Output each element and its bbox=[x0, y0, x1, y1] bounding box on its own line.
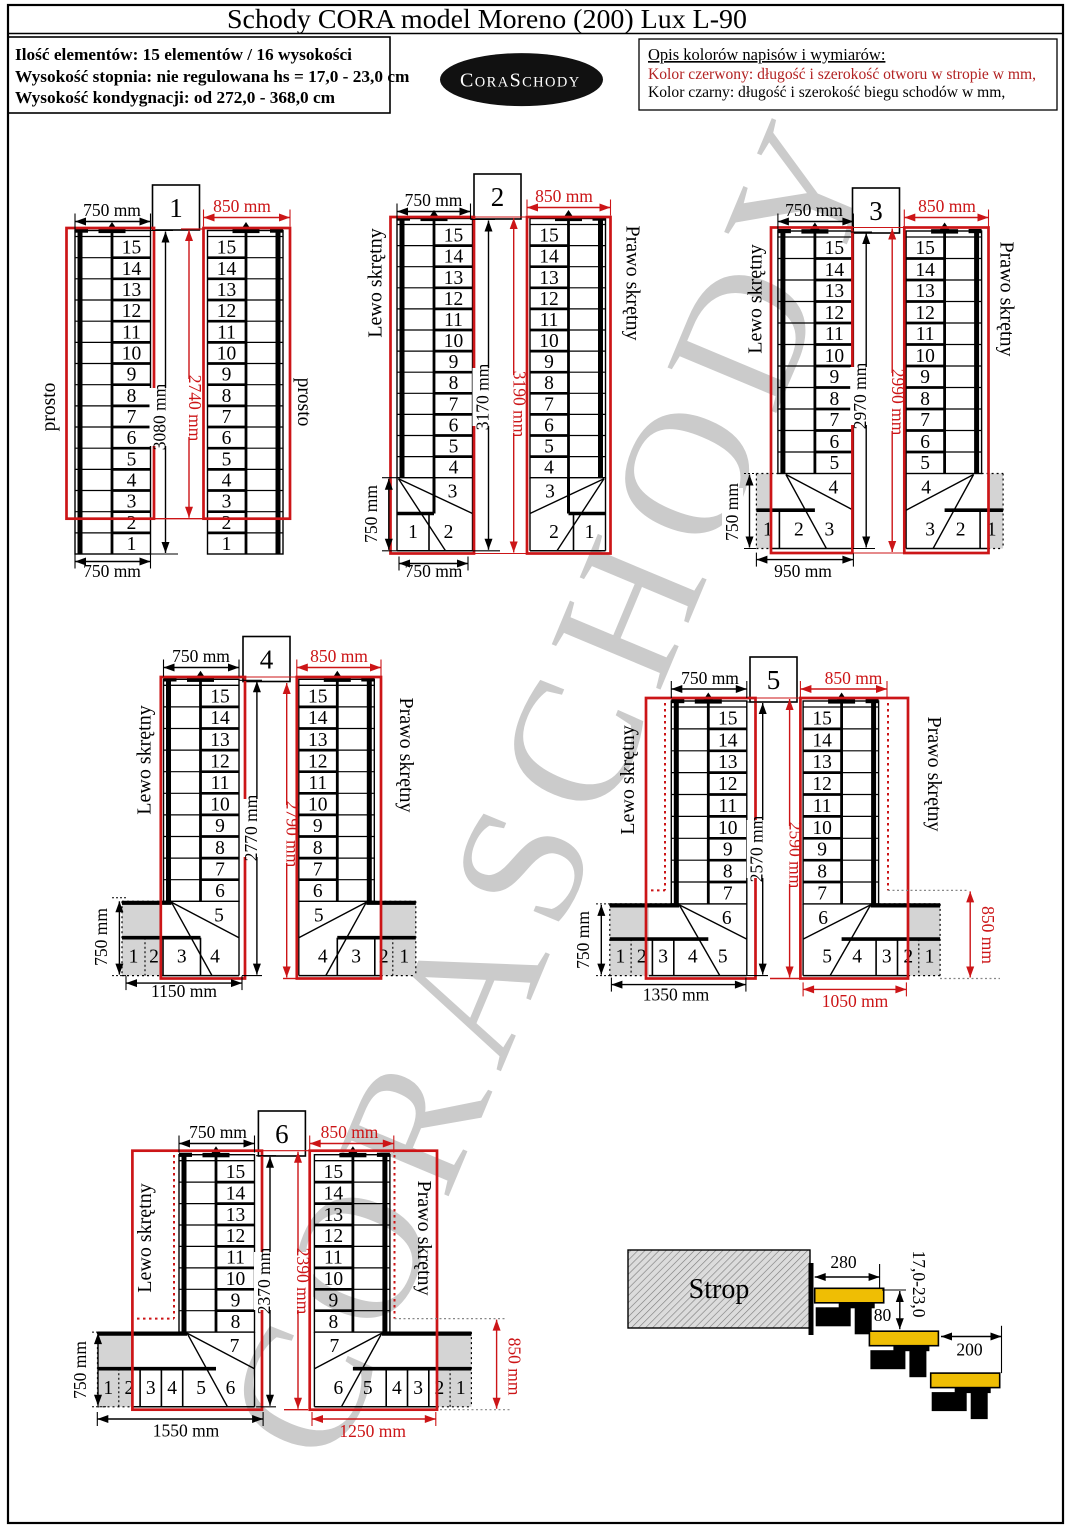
svg-text:4: 4 bbox=[167, 1378, 177, 1399]
svg-text:9: 9 bbox=[329, 1291, 339, 1312]
svg-text:2570 mm: 2570 mm bbox=[747, 815, 767, 882]
svg-text:6: 6 bbox=[313, 881, 323, 902]
svg-text:Lewo skrętny: Lewo skrętny bbox=[617, 725, 639, 834]
svg-text:1250 mm: 1250 mm bbox=[339, 1421, 406, 1441]
svg-text:850 mm: 850 mm bbox=[321, 1122, 379, 1142]
svg-text:1: 1 bbox=[127, 534, 137, 555]
svg-text:12: 12 bbox=[122, 301, 142, 322]
svg-text:1: 1 bbox=[399, 947, 409, 968]
svg-text:13: 13 bbox=[226, 1205, 246, 1226]
svg-text:3: 3 bbox=[925, 520, 935, 541]
svg-text:1550 mm: 1550 mm bbox=[153, 1421, 220, 1441]
svg-text:13: 13 bbox=[217, 280, 237, 301]
svg-text:8: 8 bbox=[127, 386, 137, 407]
svg-text:3: 3 bbox=[127, 492, 137, 513]
svg-text:13: 13 bbox=[324, 1205, 344, 1226]
svg-text:10: 10 bbox=[812, 818, 832, 839]
svg-text:10: 10 bbox=[915, 346, 935, 367]
svg-text:200: 200 bbox=[956, 1340, 983, 1360]
svg-text:5: 5 bbox=[196, 1378, 206, 1399]
svg-text:4: 4 bbox=[852, 947, 862, 968]
svg-text:15: 15 bbox=[210, 687, 230, 708]
svg-text:15: 15 bbox=[226, 1162, 246, 1183]
svg-text:6: 6 bbox=[215, 881, 225, 902]
svg-text:9: 9 bbox=[127, 365, 137, 386]
svg-text:7: 7 bbox=[449, 394, 459, 415]
svg-text:15: 15 bbox=[539, 226, 559, 247]
svg-text:2370 mm: 2370 mm bbox=[254, 1247, 274, 1314]
svg-text:1: 1 bbox=[616, 947, 626, 968]
svg-text:15: 15 bbox=[324, 1162, 344, 1183]
svg-text:11: 11 bbox=[444, 310, 463, 331]
svg-text:80: 80 bbox=[874, 1305, 892, 1325]
svg-text:2: 2 bbox=[222, 513, 232, 534]
svg-text:5: 5 bbox=[363, 1378, 373, 1399]
svg-text:10: 10 bbox=[217, 343, 237, 364]
svg-text:13: 13 bbox=[308, 730, 328, 751]
svg-text:Lewo skrętny: Lewo skrętny bbox=[134, 1183, 156, 1292]
svg-text:11: 11 bbox=[308, 773, 327, 794]
svg-text:14: 14 bbox=[915, 260, 935, 281]
svg-text:9: 9 bbox=[215, 816, 225, 837]
svg-text:8: 8 bbox=[231, 1312, 241, 1333]
svg-text:6: 6 bbox=[334, 1378, 344, 1399]
svg-text:15: 15 bbox=[718, 708, 738, 729]
svg-text:14: 14 bbox=[718, 730, 738, 751]
svg-text:1350 mm: 1350 mm bbox=[643, 985, 710, 1005]
svg-text:Ilość elementów: 15 elementów: Ilość elementów: 15 elementów / 16 wysok… bbox=[15, 45, 352, 64]
svg-text:8: 8 bbox=[723, 862, 733, 883]
svg-text:5: 5 bbox=[920, 453, 930, 474]
svg-text:6: 6 bbox=[127, 428, 137, 449]
svg-text:12: 12 bbox=[226, 1226, 246, 1247]
svg-text:1: 1 bbox=[925, 947, 935, 968]
svg-text:6: 6 bbox=[920, 432, 930, 453]
svg-text:13: 13 bbox=[539, 268, 559, 289]
svg-text:750 mm: 750 mm bbox=[573, 911, 593, 969]
svg-text:750 mm: 750 mm bbox=[70, 1341, 90, 1399]
svg-text:2: 2 bbox=[491, 182, 505, 212]
svg-text:1050 mm: 1050 mm bbox=[822, 991, 889, 1011]
svg-text:9: 9 bbox=[544, 352, 554, 373]
svg-text:750 mm: 750 mm bbox=[172, 646, 230, 666]
svg-text:1: 1 bbox=[129, 947, 139, 968]
svg-text:13: 13 bbox=[812, 752, 832, 773]
svg-text:7: 7 bbox=[830, 410, 840, 431]
svg-text:prosto: prosto bbox=[293, 378, 314, 427]
svg-text:10: 10 bbox=[210, 795, 230, 816]
svg-text:Lewo skrętny: Lewo skrętny bbox=[365, 228, 387, 337]
svg-text:1: 1 bbox=[103, 1378, 113, 1399]
svg-text:11: 11 bbox=[540, 310, 559, 331]
svg-text:3: 3 bbox=[413, 1378, 423, 1399]
svg-text:2: 2 bbox=[444, 522, 454, 543]
svg-text:12: 12 bbox=[210, 751, 230, 772]
svg-text:10: 10 bbox=[718, 818, 738, 839]
svg-text:3: 3 bbox=[825, 520, 835, 541]
svg-text:11: 11 bbox=[825, 324, 844, 345]
svg-text:9: 9 bbox=[920, 367, 930, 388]
svg-text:15: 15 bbox=[308, 687, 328, 708]
svg-text:4: 4 bbox=[222, 471, 232, 492]
svg-text:Strop: Strop bbox=[689, 1274, 750, 1305]
svg-text:14: 14 bbox=[217, 259, 237, 280]
svg-text:12: 12 bbox=[915, 303, 935, 324]
svg-text:3: 3 bbox=[146, 1378, 156, 1399]
svg-text:1: 1 bbox=[408, 522, 418, 543]
svg-text:9: 9 bbox=[830, 367, 840, 388]
svg-text:750 mm: 750 mm bbox=[361, 485, 381, 543]
svg-text:Prawo skrętny: Prawo skrętny bbox=[413, 1181, 435, 1296]
svg-text:14: 14 bbox=[210, 708, 230, 729]
svg-text:13: 13 bbox=[825, 281, 845, 302]
svg-text:4: 4 bbox=[829, 478, 839, 499]
svg-text:3: 3 bbox=[658, 947, 668, 968]
svg-text:12: 12 bbox=[308, 751, 328, 772]
svg-text:750 mm: 750 mm bbox=[405, 190, 463, 210]
svg-text:15: 15 bbox=[915, 238, 935, 259]
svg-text:Prawo skrętny: Prawo skrętny bbox=[395, 698, 417, 813]
svg-text:10: 10 bbox=[444, 331, 464, 352]
svg-text:750 mm: 750 mm bbox=[91, 908, 111, 966]
svg-text:13: 13 bbox=[122, 280, 142, 301]
svg-text:750 mm: 750 mm bbox=[189, 1122, 247, 1142]
svg-text:Prawo skrętny: Prawo skrętny bbox=[923, 717, 945, 832]
svg-text:10: 10 bbox=[308, 795, 328, 816]
svg-text:850 mm: 850 mm bbox=[505, 1338, 525, 1396]
svg-text:2: 2 bbox=[794, 520, 804, 541]
svg-text:15: 15 bbox=[444, 226, 464, 247]
svg-text:11: 11 bbox=[226, 1248, 245, 1269]
svg-text:10: 10 bbox=[324, 1269, 344, 1290]
svg-text:850 mm: 850 mm bbox=[310, 646, 368, 666]
svg-text:6: 6 bbox=[830, 432, 840, 453]
svg-text:12: 12 bbox=[444, 289, 464, 310]
svg-text:4: 4 bbox=[449, 458, 459, 479]
svg-text:Lewo skrętny: Lewo skrętny bbox=[745, 244, 767, 353]
svg-text:14: 14 bbox=[226, 1183, 246, 1204]
svg-text:5: 5 bbox=[314, 905, 324, 926]
svg-text:14: 14 bbox=[324, 1183, 344, 1204]
svg-text:6: 6 bbox=[226, 1378, 236, 1399]
svg-text:11: 11 bbox=[813, 796, 832, 817]
svg-text:850 mm: 850 mm bbox=[918, 196, 976, 216]
svg-text:14: 14 bbox=[539, 247, 559, 268]
svg-text:4: 4 bbox=[392, 1378, 402, 1399]
svg-text:2: 2 bbox=[127, 513, 137, 534]
svg-text:7: 7 bbox=[920, 410, 930, 431]
svg-text:1: 1 bbox=[222, 534, 232, 555]
svg-text:4: 4 bbox=[260, 645, 274, 675]
svg-text:8: 8 bbox=[215, 838, 225, 859]
svg-text:Wysokość kondygnacji: od 272,0: Wysokość kondygnacji: od 272,0 - 368,0 c… bbox=[15, 88, 336, 107]
svg-text:9: 9 bbox=[723, 840, 733, 861]
svg-text:8: 8 bbox=[329, 1312, 339, 1333]
svg-text:8: 8 bbox=[449, 373, 459, 394]
svg-text:9: 9 bbox=[449, 352, 459, 373]
svg-text:7: 7 bbox=[817, 884, 827, 905]
svg-text:7: 7 bbox=[222, 407, 232, 428]
svg-text:13: 13 bbox=[915, 281, 935, 302]
svg-text:2970 mm: 2970 mm bbox=[850, 362, 870, 429]
svg-text:3: 3 bbox=[448, 482, 458, 503]
svg-text:7: 7 bbox=[544, 394, 554, 415]
svg-text:11: 11 bbox=[217, 322, 236, 343]
svg-text:5: 5 bbox=[214, 905, 224, 926]
svg-text:8: 8 bbox=[544, 373, 554, 394]
svg-text:11: 11 bbox=[211, 773, 230, 794]
svg-text:1: 1 bbox=[169, 193, 183, 223]
svg-text:2: 2 bbox=[149, 947, 159, 968]
svg-text:10: 10 bbox=[122, 343, 142, 364]
svg-text:14: 14 bbox=[812, 730, 832, 751]
svg-text:10: 10 bbox=[226, 1269, 246, 1290]
svg-text:9: 9 bbox=[817, 840, 827, 861]
svg-text:6: 6 bbox=[449, 416, 459, 437]
svg-text:280: 280 bbox=[830, 1252, 857, 1272]
svg-text:12: 12 bbox=[718, 774, 738, 795]
svg-text:850 mm: 850 mm bbox=[213, 196, 271, 216]
svg-text:750 mm: 750 mm bbox=[722, 483, 742, 541]
svg-text:3170 mm: 3170 mm bbox=[473, 363, 493, 430]
svg-text:9: 9 bbox=[222, 365, 232, 386]
svg-text:7: 7 bbox=[215, 859, 225, 880]
svg-text:2740 mm: 2740 mm bbox=[185, 375, 205, 442]
svg-text:13: 13 bbox=[210, 730, 230, 751]
svg-text:2: 2 bbox=[956, 520, 966, 541]
svg-text:15: 15 bbox=[825, 238, 845, 259]
svg-text:750 mm: 750 mm bbox=[83, 561, 141, 581]
svg-text:4: 4 bbox=[210, 947, 220, 968]
svg-text:3: 3 bbox=[869, 196, 883, 226]
svg-text:3: 3 bbox=[351, 947, 361, 968]
svg-text:7: 7 bbox=[330, 1336, 340, 1357]
svg-text:Prawo skrętny: Prawo skrętny bbox=[622, 226, 644, 341]
svg-text:Kolor czarny: długość i szerok: Kolor czarny: długość i szerokość biegu … bbox=[648, 84, 1005, 101]
svg-text:15: 15 bbox=[812, 708, 832, 729]
svg-text:6: 6 bbox=[222, 428, 232, 449]
svg-text:950 mm: 950 mm bbox=[774, 561, 832, 581]
svg-text:11: 11 bbox=[916, 324, 935, 345]
svg-text:7: 7 bbox=[127, 407, 137, 428]
svg-text:4: 4 bbox=[688, 947, 698, 968]
svg-text:6: 6 bbox=[818, 908, 828, 929]
svg-text:14: 14 bbox=[122, 259, 142, 280]
svg-text:12: 12 bbox=[825, 303, 845, 324]
svg-text:3: 3 bbox=[882, 947, 892, 968]
svg-text:Kolor czerwony: długość i szer: Kolor czerwony: długość i szerokość otwo… bbox=[648, 66, 1036, 83]
svg-text:Prawo skrętny: Prawo skrętny bbox=[996, 242, 1018, 357]
svg-text:4: 4 bbox=[127, 471, 137, 492]
svg-text:11: 11 bbox=[718, 796, 737, 817]
svg-text:7: 7 bbox=[230, 1336, 240, 1357]
svg-text:850 mm: 850 mm bbox=[535, 186, 593, 206]
svg-text:10: 10 bbox=[825, 346, 845, 367]
svg-text:12: 12 bbox=[812, 774, 832, 795]
svg-text:5: 5 bbox=[718, 947, 728, 968]
svg-text:12: 12 bbox=[539, 289, 559, 310]
svg-text:3: 3 bbox=[177, 947, 187, 968]
svg-text:15: 15 bbox=[122, 238, 142, 259]
svg-text:13: 13 bbox=[718, 752, 738, 773]
svg-text:8: 8 bbox=[830, 389, 840, 410]
svg-text:750 mm: 750 mm bbox=[83, 200, 141, 220]
svg-text:6: 6 bbox=[544, 416, 554, 437]
svg-text:2: 2 bbox=[549, 522, 559, 543]
svg-text:750 mm: 750 mm bbox=[681, 668, 739, 688]
svg-text:7: 7 bbox=[723, 884, 733, 905]
svg-text:Lewo skrętny: Lewo skrętny bbox=[134, 705, 156, 814]
svg-text:14: 14 bbox=[444, 247, 464, 268]
svg-text:15: 15 bbox=[217, 238, 237, 259]
svg-text:5: 5 bbox=[767, 665, 781, 695]
svg-text:1: 1 bbox=[456, 1378, 466, 1399]
svg-text:9: 9 bbox=[313, 816, 323, 837]
svg-text:750 mm: 750 mm bbox=[785, 200, 843, 220]
svg-text:5: 5 bbox=[222, 449, 232, 470]
svg-text:8: 8 bbox=[222, 386, 232, 407]
svg-text:4: 4 bbox=[921, 478, 931, 499]
svg-text:8: 8 bbox=[920, 389, 930, 410]
svg-text:850 mm: 850 mm bbox=[978, 906, 998, 964]
svg-text:2770 mm: 2770 mm bbox=[241, 794, 261, 861]
svg-text:11: 11 bbox=[122, 322, 141, 343]
svg-text:14: 14 bbox=[825, 260, 845, 281]
svg-text:6: 6 bbox=[275, 1119, 289, 1149]
svg-text:4: 4 bbox=[544, 458, 554, 479]
svg-text:5: 5 bbox=[449, 437, 459, 458]
svg-text:5: 5 bbox=[822, 947, 832, 968]
svg-text:12: 12 bbox=[217, 301, 237, 322]
svg-text:8: 8 bbox=[817, 862, 827, 883]
svg-text:11: 11 bbox=[324, 1248, 343, 1269]
svg-text:3080 mm: 3080 mm bbox=[150, 383, 170, 450]
svg-text:Opis kolorów napisów i wymiaró: Opis kolorów napisów i wymiarów: bbox=[648, 45, 885, 64]
svg-text:3: 3 bbox=[545, 482, 555, 503]
svg-text:prosto: prosto bbox=[39, 383, 60, 432]
svg-text:3: 3 bbox=[222, 492, 232, 513]
svg-text:17,0-23,0: 17,0-23,0 bbox=[909, 1250, 929, 1317]
svg-text:Schody CORA model Moreno (200): Schody CORA model Moreno (200) Lux L-90 bbox=[227, 3, 747, 34]
svg-text:1: 1 bbox=[585, 522, 595, 543]
svg-text:Wysokość stopnia: nie regulowa: Wysokość stopnia: nie regulowana hs = 17… bbox=[15, 67, 410, 86]
svg-text:1150 mm: 1150 mm bbox=[151, 981, 217, 1001]
svg-text:4: 4 bbox=[318, 947, 328, 968]
svg-text:5: 5 bbox=[830, 453, 840, 474]
svg-text:10: 10 bbox=[539, 331, 559, 352]
svg-text:850 mm: 850 mm bbox=[825, 668, 883, 688]
svg-text:13: 13 bbox=[444, 268, 464, 289]
svg-text:9: 9 bbox=[231, 1291, 241, 1312]
svg-text:5: 5 bbox=[544, 437, 554, 458]
svg-text:7: 7 bbox=[313, 859, 323, 880]
svg-text:5: 5 bbox=[127, 449, 137, 470]
svg-text:6: 6 bbox=[722, 908, 732, 929]
svg-text:12: 12 bbox=[324, 1226, 344, 1247]
svg-text:8: 8 bbox=[313, 838, 323, 859]
svg-text:14: 14 bbox=[308, 708, 328, 729]
